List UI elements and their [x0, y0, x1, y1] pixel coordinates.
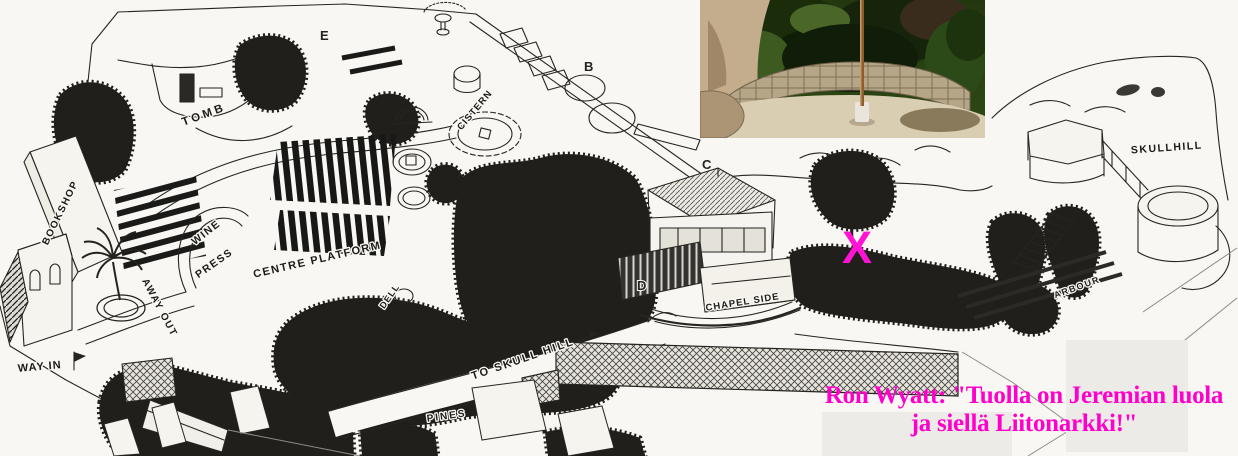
garden-tomb-map-page: TOMB BOOKSHOP WINE PRESS CENTRE PLATFORM…: [0, 0, 1238, 456]
garden-courtyard-photo: [700, 0, 985, 138]
caption: Ron Wyatt: "Tuolla on Jeremian luola ja …: [810, 382, 1238, 438]
caption-line1: Ron Wyatt: "Tuolla on Jeremian luola: [810, 382, 1238, 410]
caption-line2: ja siellä Liitonarkki!": [810, 410, 1238, 438]
x-marker: X: [842, 222, 872, 273]
map-letter-b: B: [584, 59, 593, 74]
map-letter-e: E: [320, 28, 329, 43]
map-letter-d: D: [637, 278, 646, 293]
map-letter-c: C: [702, 157, 712, 172]
